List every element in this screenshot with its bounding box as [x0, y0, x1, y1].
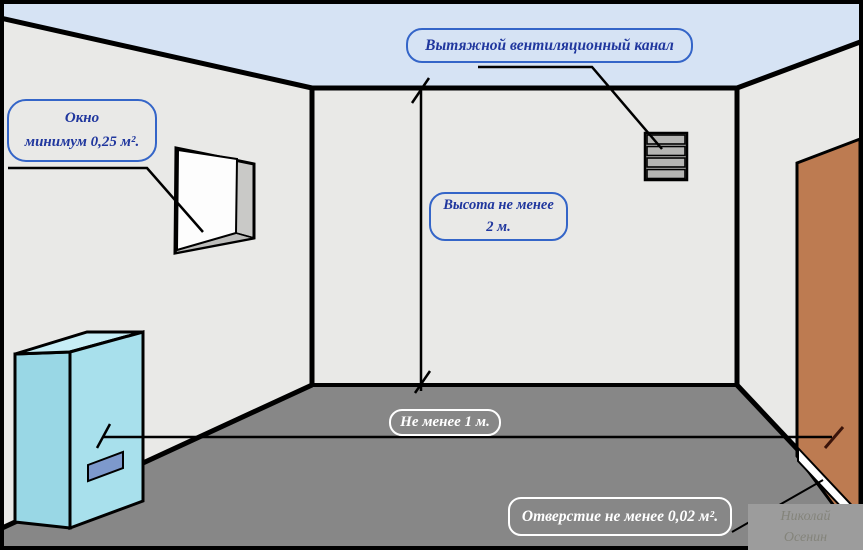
ventilation-grille — [645, 133, 687, 180]
callout-door-opening: Отверстие не менее 0,02 м². — [508, 497, 732, 536]
watermark-line1: Николай — [780, 506, 830, 527]
callout-vent-channel: Вытяжной вентиляционный канал — [406, 28, 693, 63]
window-label-line2: минимум 0,25 м². — [25, 131, 139, 154]
window-label-line1: Окно — [65, 107, 99, 130]
grille-slat — [647, 170, 685, 179]
floor-distance-label: Не менее 1 м. — [400, 414, 490, 431]
room-diagram: Николай Осенин Вытяжной вентиляционный к… — [0, 0, 863, 550]
door-opening-label: Отверстие не менее 0,02 м². — [522, 508, 718, 526]
vent-channel-label: Вытяжной вентиляционный канал — [425, 37, 674, 55]
boiler-side-face — [15, 352, 70, 528]
callout-floor-distance: Не менее 1 м. — [389, 409, 501, 436]
callout-height: Высота не менее 2 м. — [429, 192, 568, 241]
room-drawing — [0, 0, 863, 550]
watermark-line2: Осенин — [784, 527, 827, 548]
window-pane — [177, 150, 237, 250]
grille-slat — [647, 158, 685, 167]
height-label-line2: 2 м. — [486, 217, 510, 238]
watermark: Николай Осенин — [748, 504, 863, 550]
callout-window: Окно минимум 0,25 м². — [7, 99, 157, 162]
height-label-line1: Высота не менее — [443, 195, 554, 216]
boiler — [15, 332, 143, 528]
grille-slat — [647, 147, 685, 156]
window — [175, 148, 254, 253]
